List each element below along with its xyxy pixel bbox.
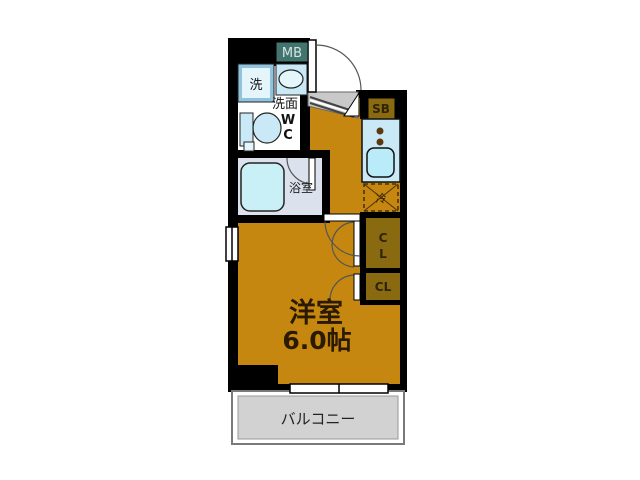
closet-top-door-leaf [354, 221, 360, 266]
closet-top-label-line1: C [379, 231, 388, 245]
entry-door-arc [316, 45, 361, 90]
shoe-box-label: SB [372, 102, 390, 116]
washing-machine-label: 洗 [249, 78, 262, 93]
floorplan-page: バルコニー MB 洗 洗面 W C [0, 0, 640, 480]
wall-bath-top [228, 150, 330, 158]
wc-label-line1: W [281, 113, 295, 128]
bathroom-label: 浴室 [289, 180, 313, 195]
wc-label-line2: C [283, 128, 293, 143]
vanity-label: 洗面 [272, 97, 298, 112]
toilet-base [244, 142, 254, 151]
shoe-box: SB [368, 98, 395, 119]
toilet-tank [240, 113, 253, 146]
meter-box-label: MB [282, 46, 302, 61]
closet-bottom-door-leaf [354, 274, 360, 300]
floorplan-canvas: バルコニー MB 洗 洗面 W C [0, 0, 640, 480]
entrance [308, 40, 361, 118]
burner-dot-1 [377, 128, 384, 135]
kitchen-sink [367, 148, 394, 177]
balcony: バルコニー [232, 391, 404, 444]
kitchen [362, 119, 400, 182]
bathtub [241, 163, 284, 211]
room-name-label: 洋室 [289, 297, 343, 329]
fridge-label: 冷 [376, 192, 387, 205]
toilet-bowl [253, 113, 281, 143]
vanity-basin [279, 70, 303, 88]
meter-box: MB [276, 42, 308, 62]
closet-bottom-label: CL [375, 280, 392, 294]
wall-bath-bottom [228, 215, 330, 223]
balcony-label: バルコニー [281, 410, 356, 428]
room-size-label: 6.0帖 [282, 326, 351, 355]
room-door-leaf [324, 214, 360, 221]
entry-door-leaf [308, 40, 316, 92]
main-room: 洋室 6.0帖 [282, 297, 351, 355]
closet-top-label-line2: L [379, 247, 387, 261]
burner-dot-2 [377, 139, 384, 146]
wall-bath-right [322, 150, 330, 223]
